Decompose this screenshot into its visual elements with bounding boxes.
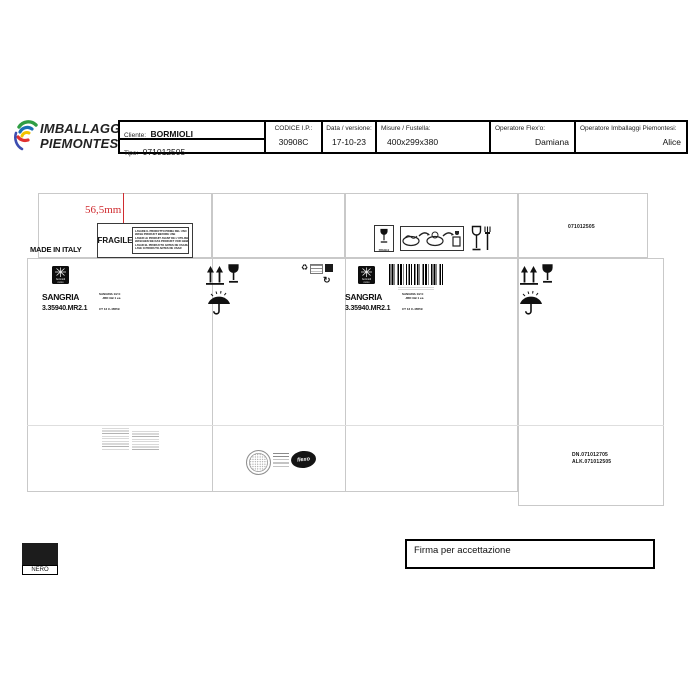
fragile-care-box: FRAGILE LAVARE IL PRODOTTO PRIMA DEL USO… xyxy=(97,223,193,258)
svg-text:rocco: rocco xyxy=(58,281,65,284)
fragile-glass-icon xyxy=(227,263,240,289)
rotate-recycle-icon: ↻ xyxy=(323,276,331,285)
recycling-marks: ♻ xyxy=(301,264,333,274)
svg-text:rocco: rocco xyxy=(364,281,371,284)
tipo-value: 071012505 xyxy=(143,147,186,157)
fragile-word: FRAGILE xyxy=(98,224,132,257)
fragile-glass-icon xyxy=(541,263,554,289)
barcode xyxy=(386,264,446,285)
signature-label: Firma per accettazione xyxy=(414,545,511,556)
production-code-dn: DN.071012705 xyxy=(572,452,611,459)
header-cell-data: Data / versione: 17-10-23 xyxy=(321,120,377,154)
product-detail-3: CT 12 C-46559 xyxy=(99,308,120,312)
signature-box[interactable]: Firma per accettazione xyxy=(405,539,655,569)
cliente-value: BORMIOLI xyxy=(151,129,194,139)
product-name: SANGRIA xyxy=(345,292,382,302)
printer-logo-text: flexo xyxy=(297,456,310,463)
bormioli-logo: bormioli rocco xyxy=(52,266,69,284)
keep-dry-icon xyxy=(518,290,544,321)
proof-sheet: IMBALLAGGI PIEMONTESI Cliente: BORMIOLI … xyxy=(0,0,700,700)
header-cell-flexo: Operatore Flex'o: Damiana xyxy=(489,120,576,154)
product-detail-2: JRD GB 1 ea xyxy=(99,297,120,301)
production-codes: DN.071012705 ALK.071012505 xyxy=(572,452,611,465)
product-code: 3.35940.MR2.1 xyxy=(345,305,390,312)
seal-caption-lines xyxy=(273,453,289,468)
black-mark xyxy=(325,264,333,272)
dimension-label: 56,5mm xyxy=(85,204,121,216)
data-value: 17-10-23 xyxy=(323,133,375,147)
header-cell-operatore-ip: Operatore Imballaggi Piemontesi: Alice xyxy=(574,120,688,154)
header-cell-misure: Misure / Fustella: 400x299x380 xyxy=(375,120,491,154)
codice-label: CODICE I.P.: xyxy=(266,122,321,133)
product-detail-2: JRD GB 1 ea xyxy=(402,297,423,301)
this-side-up-icon xyxy=(520,264,538,290)
product-details: SANGRIA 1/2 lt JRD GB 1 ea xyxy=(402,293,423,301)
data-label: Data / versione: xyxy=(323,122,375,133)
header-cell-cliente: Cliente: BORMIOLI Tipo: 071012505 xyxy=(118,120,266,154)
care-line: LAVE O PRODUTO ANTES DE USAR xyxy=(135,247,188,251)
barcode-number xyxy=(398,287,434,290)
color-swatch-label: NERO xyxy=(22,565,58,575)
top-right-item-code: 071012505 xyxy=(568,224,595,231)
color-swatch-black xyxy=(22,543,58,566)
care-instructions: LAVARE IL PRODOTTO PRIMA DEL USO WASH PR… xyxy=(132,227,189,254)
cliente-label: Cliente: xyxy=(124,132,146,139)
material-code-mark xyxy=(310,264,323,274)
product-detail-3: CT 12 C-46559 xyxy=(402,308,423,312)
imballaggi-value: Alice xyxy=(576,133,686,147)
certification-seal-icon xyxy=(246,450,271,475)
flexo-value: Damiana xyxy=(491,133,574,147)
tipo-label: Tipo: xyxy=(124,150,138,157)
this-side-up-icon xyxy=(206,264,224,290)
made-in-italy-label: MADE IN ITALY xyxy=(30,245,82,254)
company-name-line2: PIEMONTESI xyxy=(40,136,124,151)
die-line-panel-top-mid xyxy=(212,193,345,258)
misure-value: 400x299x380 xyxy=(377,133,489,147)
food-safe-icon xyxy=(470,225,492,257)
dishwashing-pictogram-icon xyxy=(400,226,464,251)
fragile-icon-caption: FRAGILE xyxy=(375,249,393,252)
recycle-icon: ♻ xyxy=(301,264,308,272)
crease-line xyxy=(27,425,664,426)
header-cell-codice: CODICE I.P.: 30908C xyxy=(264,120,323,154)
product-code: 3.35940.MR2.1 xyxy=(42,305,87,312)
codice-value: 30908C xyxy=(266,133,321,147)
company-logo-text: IMBALLAGGI PIEMONTESI xyxy=(40,121,124,151)
fineprint-block xyxy=(132,431,159,450)
company-name-line1: IMBALLAGGI xyxy=(40,121,124,136)
misure-label: Misure / Fustella: xyxy=(377,122,489,133)
production-code-alk: ALK.071012505 xyxy=(572,459,611,466)
product-name: SANGRIA xyxy=(42,292,79,302)
product-details: SANGRIA 1/2 lt JRD GB 1 ea xyxy=(99,293,120,301)
company-logo-icon xyxy=(12,119,38,151)
dimension-line xyxy=(123,193,124,223)
bormioli-logo: bormioli rocco xyxy=(358,266,375,284)
keep-dry-icon xyxy=(206,290,232,321)
fineprint-block xyxy=(102,428,129,450)
flexo-label: Operatore Flex'o: xyxy=(491,122,574,133)
fragile-small-box-icon: FRAGILE xyxy=(374,225,394,252)
imballaggi-label: Operatore Imballaggi Piemontesi: xyxy=(576,122,686,133)
care-line: WASCHEN SIE DAS PRODUKT VOR GEBRAUCH xyxy=(135,240,188,244)
